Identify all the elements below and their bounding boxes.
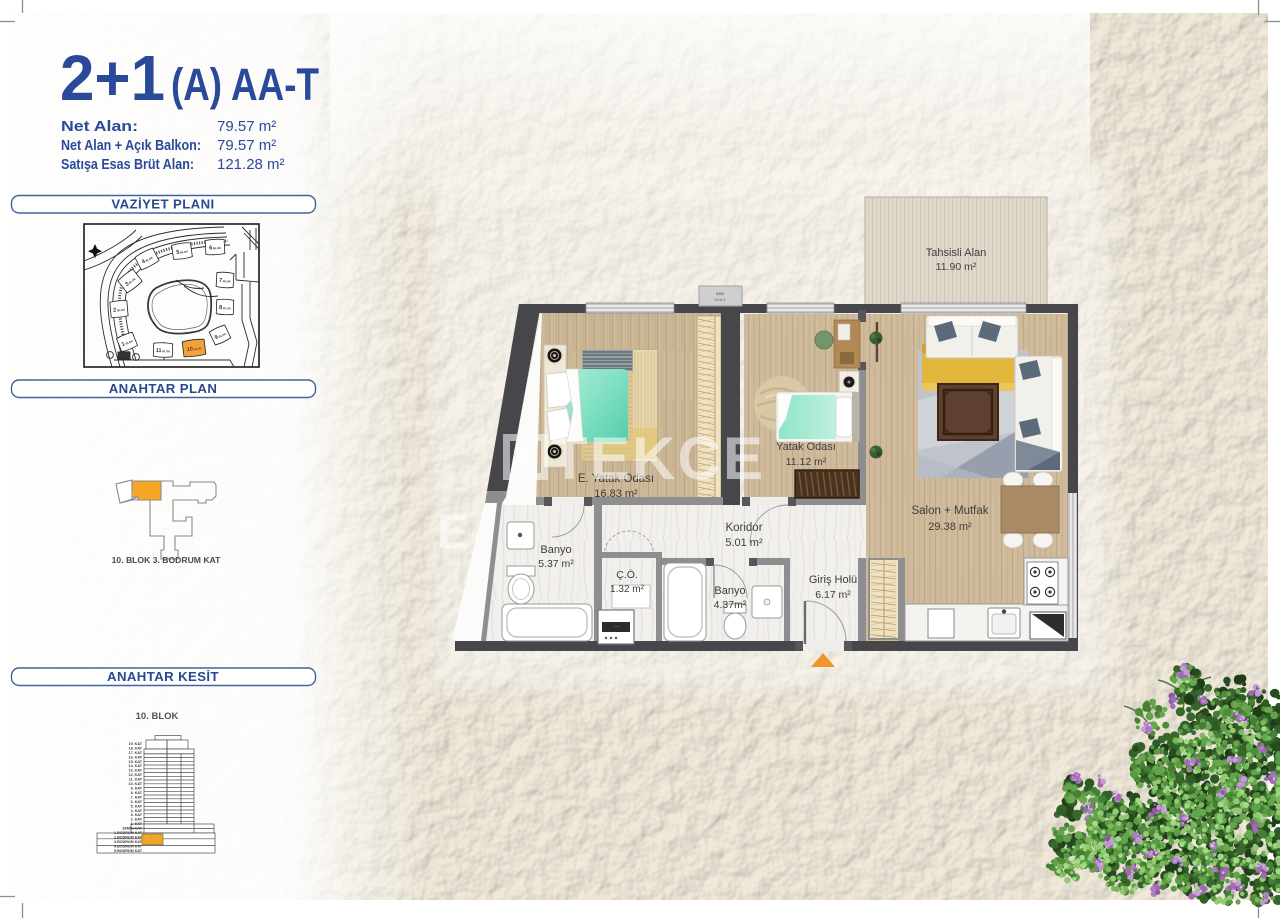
svg-text:10. KAT: 10. KAT [129, 782, 143, 786]
svg-text:5.BODRUM KAT: 5.BODRUM KAT [114, 849, 143, 853]
svg-text:12. KAT: 12. KAT [129, 773, 143, 777]
svg-text:18. KAT: 18. KAT [129, 747, 143, 751]
svg-text:Banyo: Banyo [540, 544, 571, 556]
svg-text:(A): (A) [171, 59, 222, 110]
svg-text:AA-T: AA-T [231, 59, 319, 110]
svg-text:9. KAT: 9. KAT [131, 787, 143, 791]
svg-text:Net Alan + Açık Balkon:: Net Alan + Açık Balkon: [61, 137, 201, 154]
svg-text:ZEMIN KAT: ZEMIN KAT [122, 827, 143, 831]
svg-text:7. KAT: 7. KAT [131, 795, 143, 799]
svg-text:Salon + Mutfak: Salon + Mutfak [911, 505, 988, 517]
svg-text:14. KAT: 14. KAT [129, 764, 143, 768]
svg-text:10. BLOK 3. BODRUM KAT: 10. BLOK 3. BODRUM KAT [112, 555, 221, 565]
svg-text:2.BODRUM KAT: 2.BODRUM KAT [114, 836, 143, 840]
svg-text:VAZİYET PLANI: VAZİYET PLANI [111, 197, 214, 212]
svg-text:11. KAT: 11. KAT [129, 778, 143, 782]
svg-text:2+1: 2+1 [60, 42, 165, 114]
svg-text:6.17 m²: 6.17 m² [815, 589, 851, 601]
svg-text:19. KAT: 19. KAT [129, 742, 143, 746]
svg-text:.....: ..... [614, 623, 620, 628]
svg-text:79.57 m²: 79.57 m² [217, 137, 276, 154]
svg-text:ANAHTAR KESİT: ANAHTAR KESİT [107, 669, 219, 684]
svg-text:Net Alan:: Net Alan: [61, 118, 138, 135]
svg-text:6. KAT: 6. KAT [131, 800, 143, 804]
svg-text:1. KAT: 1. KAT [131, 822, 143, 826]
svg-text:2. KAT: 2. KAT [131, 818, 143, 822]
svg-text:5.01 m²: 5.01 m² [725, 537, 763, 549]
svg-text:Ç.Ö.: Ç.Ö. [616, 569, 638, 581]
svg-text:3. KAT: 3. KAT [131, 813, 143, 817]
svg-text:ANAHTAR PLAN: ANAHTAR PLAN [109, 381, 218, 396]
svg-text:5.37 m²: 5.37 m² [538, 558, 574, 570]
svg-text:16. KAT: 16. KAT [129, 755, 143, 759]
svg-text:121.28 m²: 121.28 m² [217, 156, 285, 173]
svg-text:13. KAT: 13. KAT [129, 769, 143, 773]
svg-text:17. KAT: 17. KAT [129, 751, 143, 755]
svg-text:4.37m²: 4.37m² [714, 599, 747, 611]
svg-text:Giriş Holü: Giriş Holü [809, 574, 857, 586]
svg-text:3.BODRUM KAT: 3.BODRUM KAT [114, 840, 143, 844]
svg-text:BBB: BBB [716, 291, 724, 296]
svg-text:Tahsisli Alan: Tahsisli Alan [926, 247, 987, 259]
svg-text:Koridor: Koridor [725, 522, 762, 534]
svg-text:1.32 m²: 1.32 m² [610, 584, 645, 595]
svg-text:11.90 m²: 11.90 m² [936, 261, 977, 273]
svg-text:4.BODRUM KAT: 4.BODRUM KAT [114, 844, 143, 848]
svg-text:Yatak Odası: Yatak Odası [776, 441, 836, 453]
svg-text:29.38 m²: 29.38 m² [928, 521, 972, 533]
svg-text:10. BLOK: 10. BLOK [136, 711, 179, 722]
svg-text:XXX-1: XXX-1 [714, 297, 726, 302]
svg-text:15. KAT: 15. KAT [129, 760, 143, 764]
svg-text:8. KAT: 8. KAT [131, 791, 143, 795]
svg-text:11.12 m²: 11.12 m² [786, 456, 827, 468]
svg-text:79.57 m²: 79.57 m² [217, 118, 276, 135]
svg-text:Banyo: Banyo [714, 585, 745, 597]
svg-text:5. KAT: 5. KAT [131, 804, 143, 808]
svg-text:4. KAT: 4. KAT [131, 809, 143, 813]
svg-text:E: E [437, 506, 469, 559]
svg-text:1.BODRUM KAT: 1.BODRUM KAT [114, 831, 143, 835]
svg-text:Satışa Esas Brüt Alan:: Satışa Esas Brüt Alan: [61, 156, 194, 173]
svg-text:TEKCE: TEKCE [551, 425, 763, 492]
